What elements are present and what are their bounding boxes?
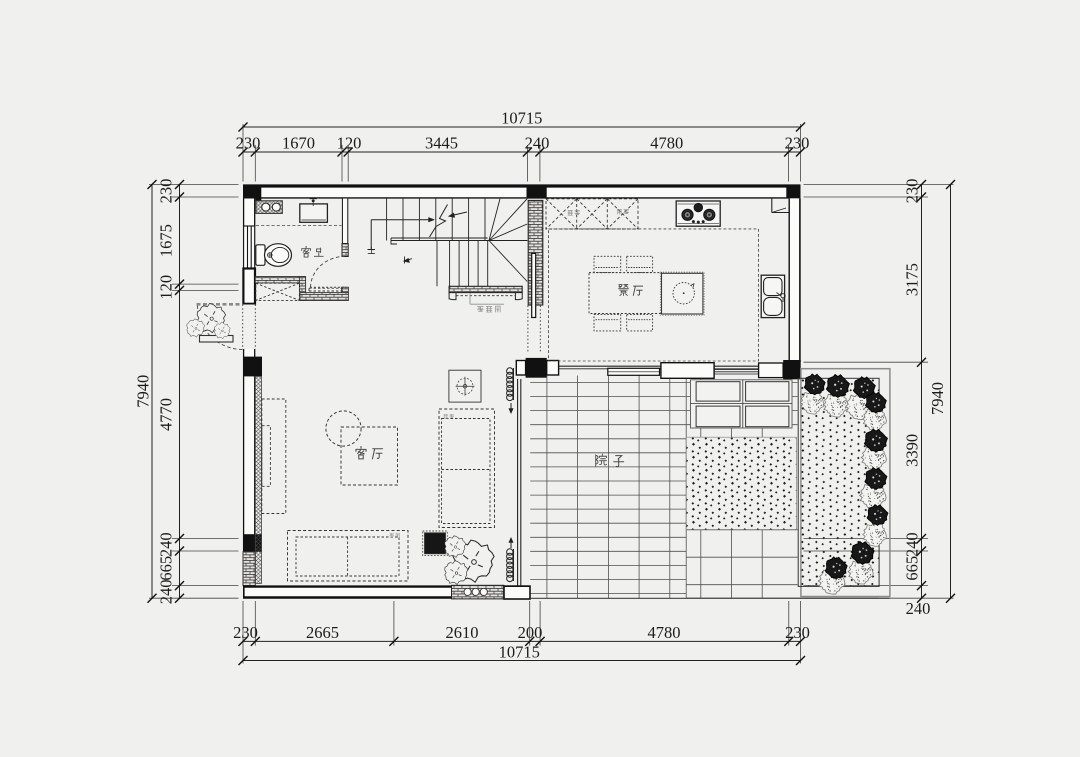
svg-text:7940: 7940 — [134, 375, 153, 408]
svg-text:2665: 2665 — [306, 623, 339, 642]
svg-text:10715: 10715 — [501, 109, 542, 128]
svg-text:200: 200 — [518, 623, 543, 642]
svg-text:120: 120 — [157, 275, 176, 300]
svg-text:1670: 1670 — [282, 134, 315, 153]
svg-text:4780: 4780 — [648, 623, 681, 642]
svg-text:230: 230 — [157, 179, 176, 204]
svg-text:230: 230 — [233, 623, 258, 642]
svg-text:1675: 1675 — [157, 224, 176, 257]
svg-text:4770: 4770 — [157, 398, 176, 431]
svg-text:665: 665 — [903, 556, 922, 581]
svg-text:120: 120 — [337, 134, 362, 153]
svg-text:3390: 3390 — [903, 434, 922, 467]
svg-text:230: 230 — [236, 134, 261, 153]
svg-text:3445: 3445 — [425, 134, 458, 153]
svg-text:230: 230 — [785, 623, 810, 642]
svg-text:240: 240 — [903, 532, 922, 557]
svg-text:240: 240 — [525, 134, 550, 153]
svg-text:10715: 10715 — [499, 643, 540, 662]
svg-text:240: 240 — [157, 580, 176, 605]
svg-text:7940: 7940 — [928, 382, 947, 415]
svg-text:665: 665 — [157, 556, 176, 581]
svg-text:230: 230 — [903, 179, 922, 204]
svg-text:230: 230 — [785, 134, 810, 153]
svg-text:3175: 3175 — [903, 263, 922, 296]
svg-text:240: 240 — [157, 532, 176, 557]
svg-text:2610: 2610 — [446, 623, 479, 642]
svg-text:240: 240 — [906, 599, 931, 618]
svg-text:4780: 4780 — [650, 134, 683, 153]
